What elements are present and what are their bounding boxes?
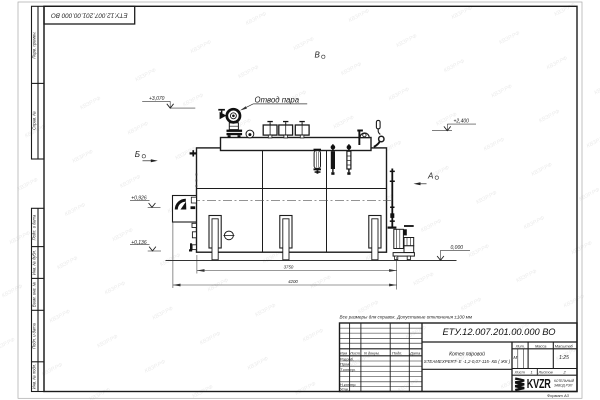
- svg-text:Т.контр.: Т.контр.: [340, 367, 356, 372]
- svg-text:Подп.: Подп.: [392, 351, 402, 356]
- svg-text:Дата: Дата: [409, 351, 421, 356]
- svg-text:4200: 4200: [288, 279, 298, 284]
- svg-text:Утв.: Утв.: [340, 387, 349, 392]
- svg-text:Котел паровой: Котел паровой: [449, 351, 485, 358]
- svg-text:Масса: Масса: [535, 343, 547, 348]
- svg-text:Масштаб: Масштаб: [555, 343, 574, 348]
- svg-text:КОТЕЛЬНЫЙ: КОТЕЛЬНЫЙ: [554, 379, 575, 383]
- svg-text:Подп. и дата: Подп. и дата: [31, 322, 36, 348]
- svg-text:ЕТУ.12.007.201.00.000 ВО: ЕТУ.12.007.201.00.000 ВО: [442, 327, 555, 337]
- svg-text:ЗАВОД РЭП: ЗАВОД РЭП: [554, 383, 573, 387]
- svg-text:ЕТУ.12.007.201.00.000 ВО: ЕТУ.12.007.201.00.000 ВО: [51, 12, 128, 19]
- svg-text:1: 1: [531, 369, 533, 374]
- svg-text:Пров.: Пров.: [340, 362, 350, 367]
- svg-text:Подп. и дата: Подп. и дата: [31, 214, 36, 240]
- svg-text:1:25: 1:25: [559, 355, 569, 361]
- svg-text:Инв. № подл.: Инв. № подл.: [31, 364, 36, 389]
- svg-text:Инв. № дубл.: Инв. № дубл.: [31, 250, 36, 275]
- svg-text:А: А: [427, 171, 433, 180]
- svg-text:Справ. №: Справ. №: [31, 111, 36, 130]
- svg-text:Лист: Лист: [349, 351, 361, 356]
- svg-text:В: В: [315, 51, 321, 60]
- svg-text:0,000: 0,000: [451, 245, 464, 251]
- svg-text:Все размеры для справок. Допу: Все размеры для справок. Допустимые откл…: [340, 315, 473, 320]
- svg-text:+2,400: +2,400: [454, 118, 470, 124]
- svg-text:Отвод пара: Отвод пара: [255, 95, 300, 104]
- svg-text:Лист: Лист: [514, 369, 526, 374]
- svg-text:N докум.: N докум.: [364, 351, 380, 356]
- svg-text:Б: Б: [135, 150, 140, 159]
- svg-text:Взам. инв. №: Взам. инв. №: [31, 281, 36, 307]
- svg-text:3750: 3750: [284, 265, 294, 270]
- svg-text:М: М: [513, 355, 517, 360]
- svg-text:STEAMEXPERT- Е -1,2-0,07-115-: STEAMEXPERT- Е -1,2-0,07-115- КБ ( ЖК ): [424, 359, 511, 364]
- svg-text:Изм: Изм: [340, 351, 348, 356]
- svg-text:KVZR: KVZR: [527, 378, 551, 392]
- svg-text:Формат А3: Формат А3: [547, 393, 570, 398]
- svg-text:Листов: Листов: [538, 369, 553, 374]
- svg-text:Лит.: Лит.: [515, 343, 525, 348]
- svg-text:Перв. примен.: Перв. примен.: [31, 31, 36, 58]
